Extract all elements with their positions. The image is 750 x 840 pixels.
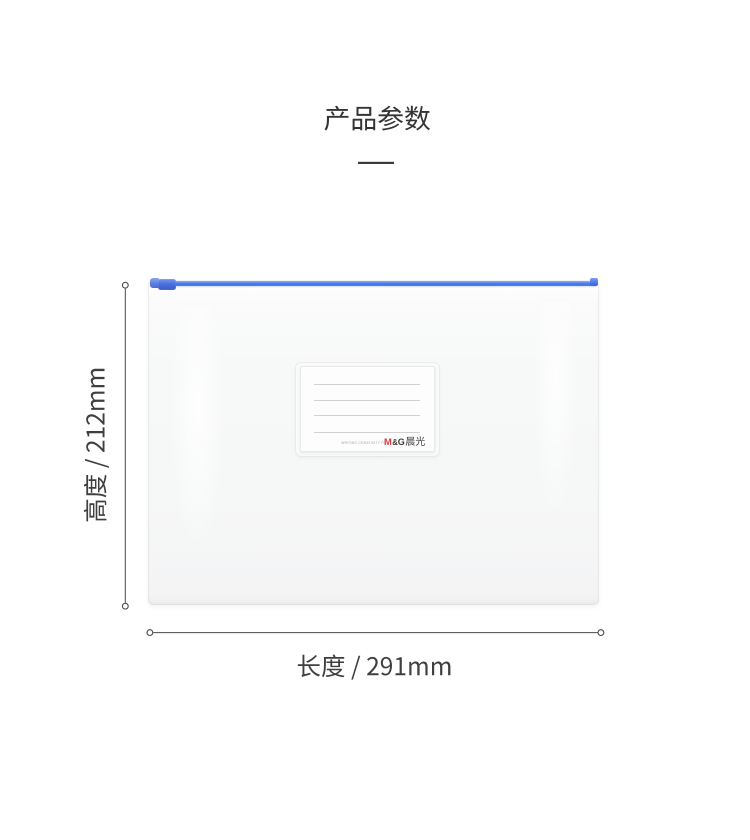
svg-text:M: M	[384, 436, 392, 447]
svg-text:G: G	[398, 437, 405, 447]
